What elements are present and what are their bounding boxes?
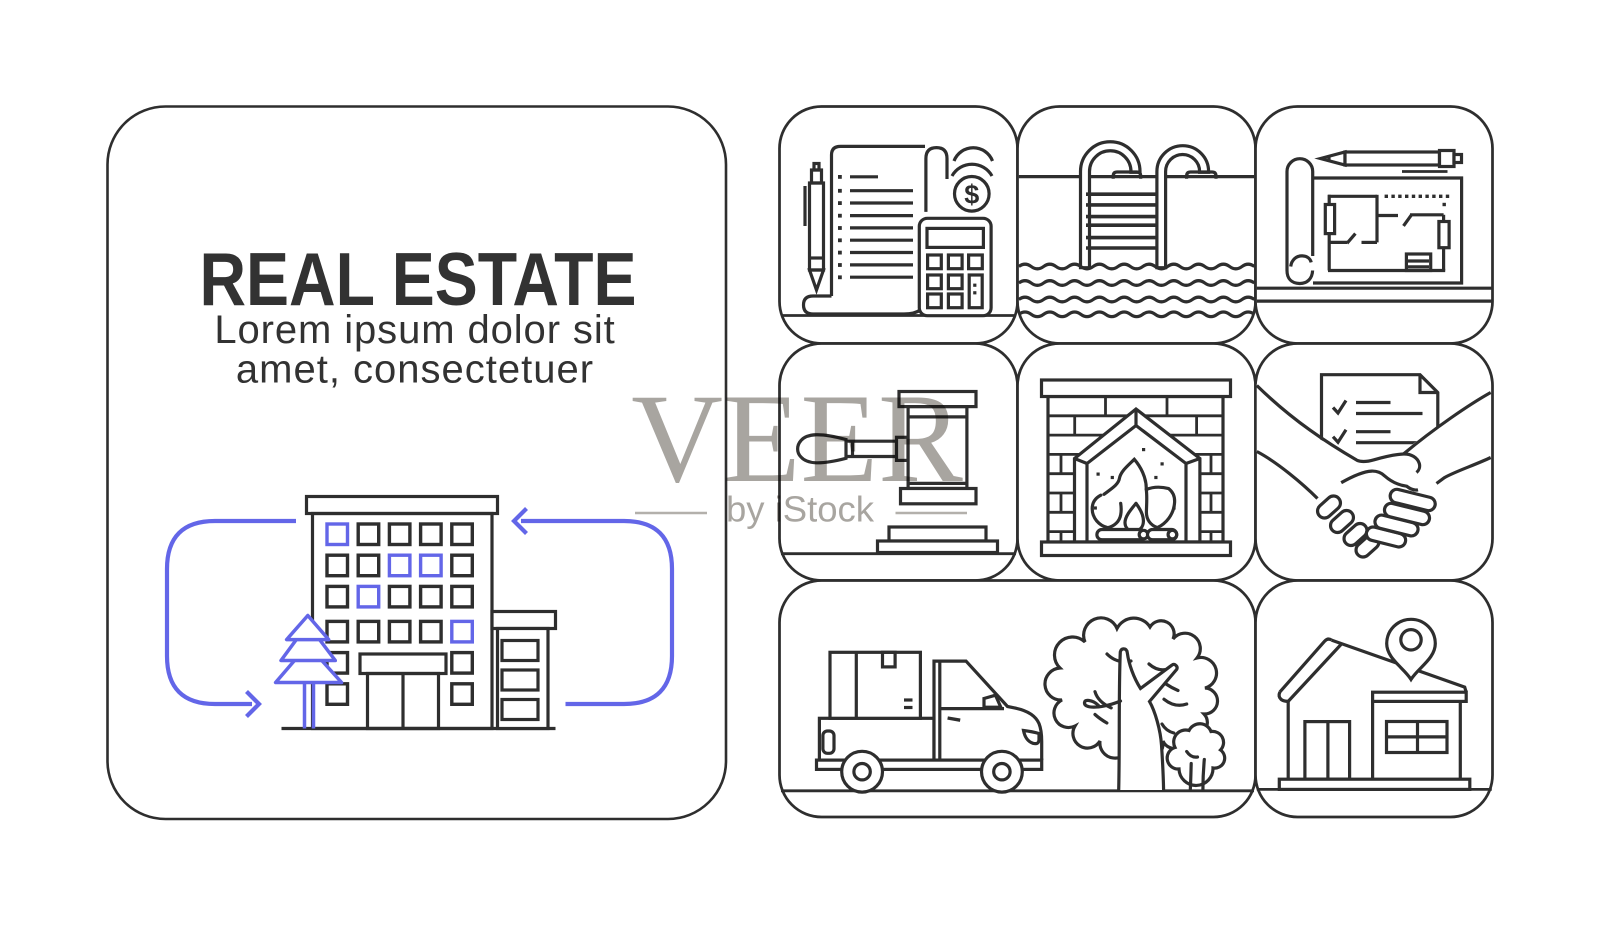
svg-text:amet, consectetuer: amet, consectetuer — [236, 348, 594, 392]
svg-text:Lorem ipsum dolor sit: Lorem ipsum dolor sit — [214, 308, 615, 352]
svg-text:by iStock: by iStock — [726, 489, 875, 530]
svg-text:$: $ — [964, 180, 979, 210]
